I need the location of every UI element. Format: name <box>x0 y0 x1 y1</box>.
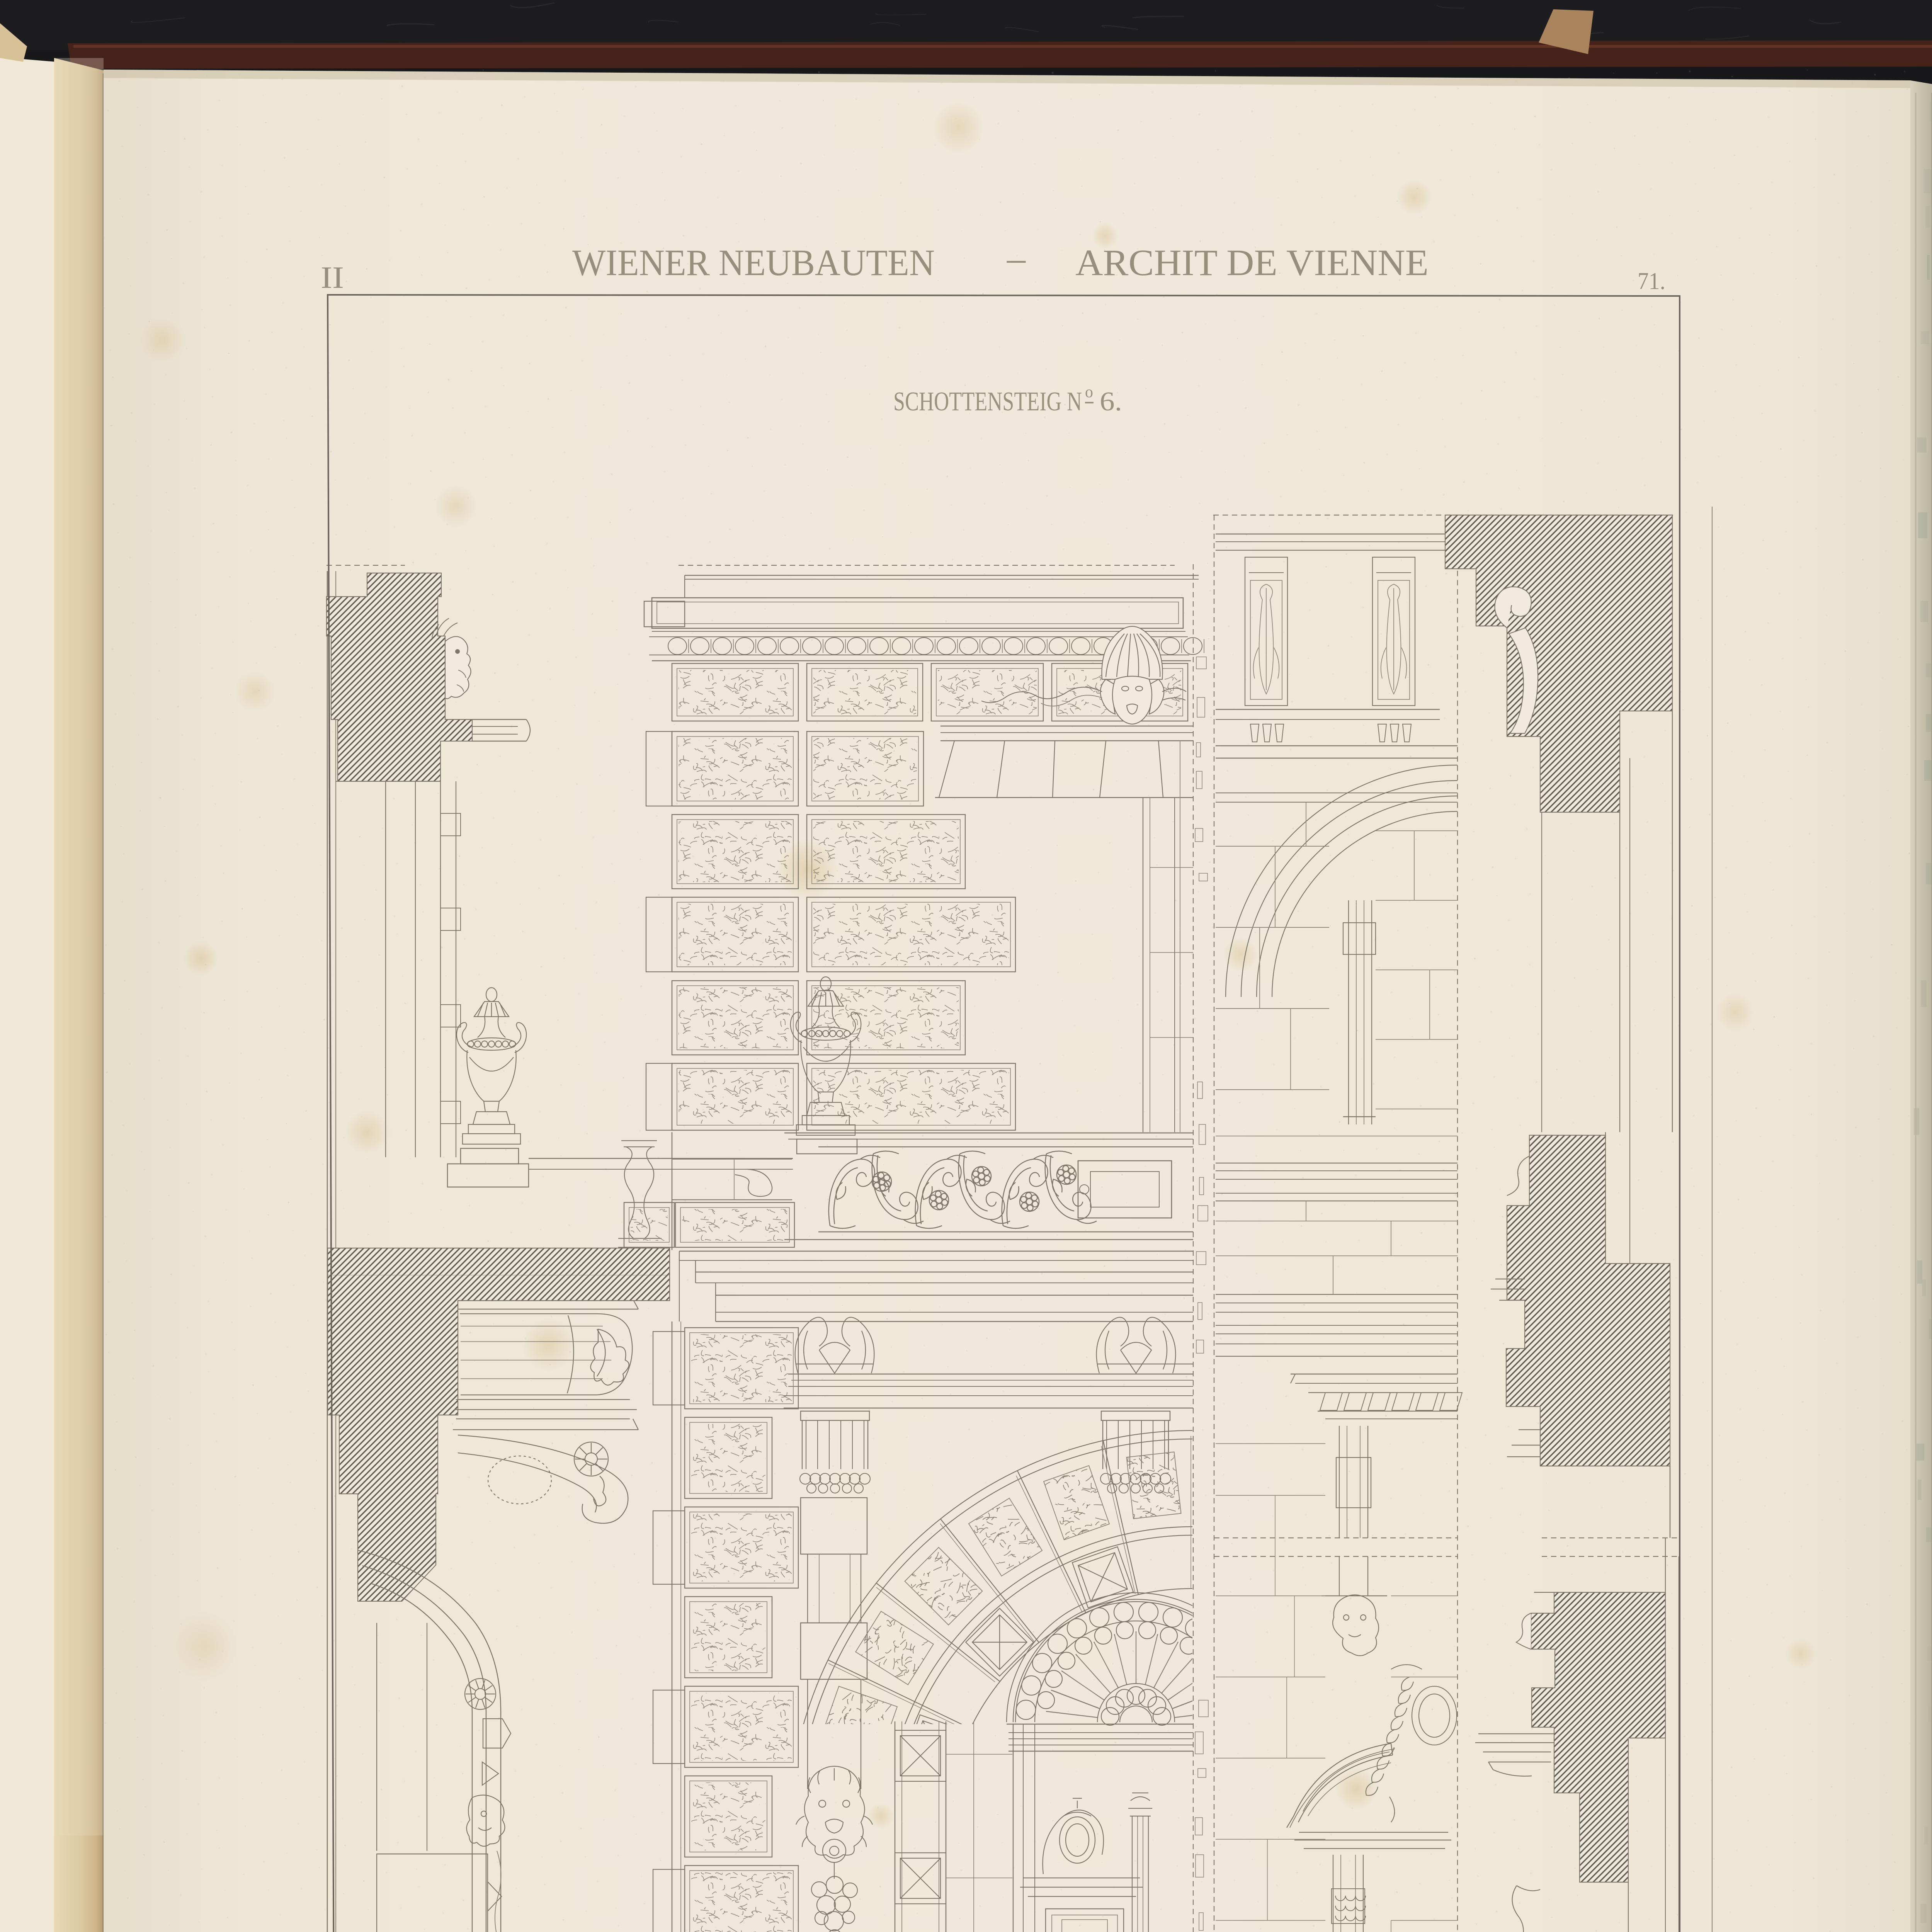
svg-text:II: II <box>321 261 344 295</box>
svg-text:o: o <box>1085 383 1093 401</box>
svg-text:WIENER NEUBAUTEN: WIENER NEUBAUTEN <box>572 242 935 283</box>
svg-text:–: – <box>1007 237 1026 279</box>
svg-text:SCHOTTENSTEIG N: SCHOTTENSTEIG N <box>893 387 1082 417</box>
svg-text:71.: 71. <box>1638 268 1665 294</box>
svg-text:6.: 6. <box>1100 387 1122 417</box>
svg-text:ARCHIT DE VIENNE: ARCHIT DE VIENNE <box>1075 242 1429 283</box>
